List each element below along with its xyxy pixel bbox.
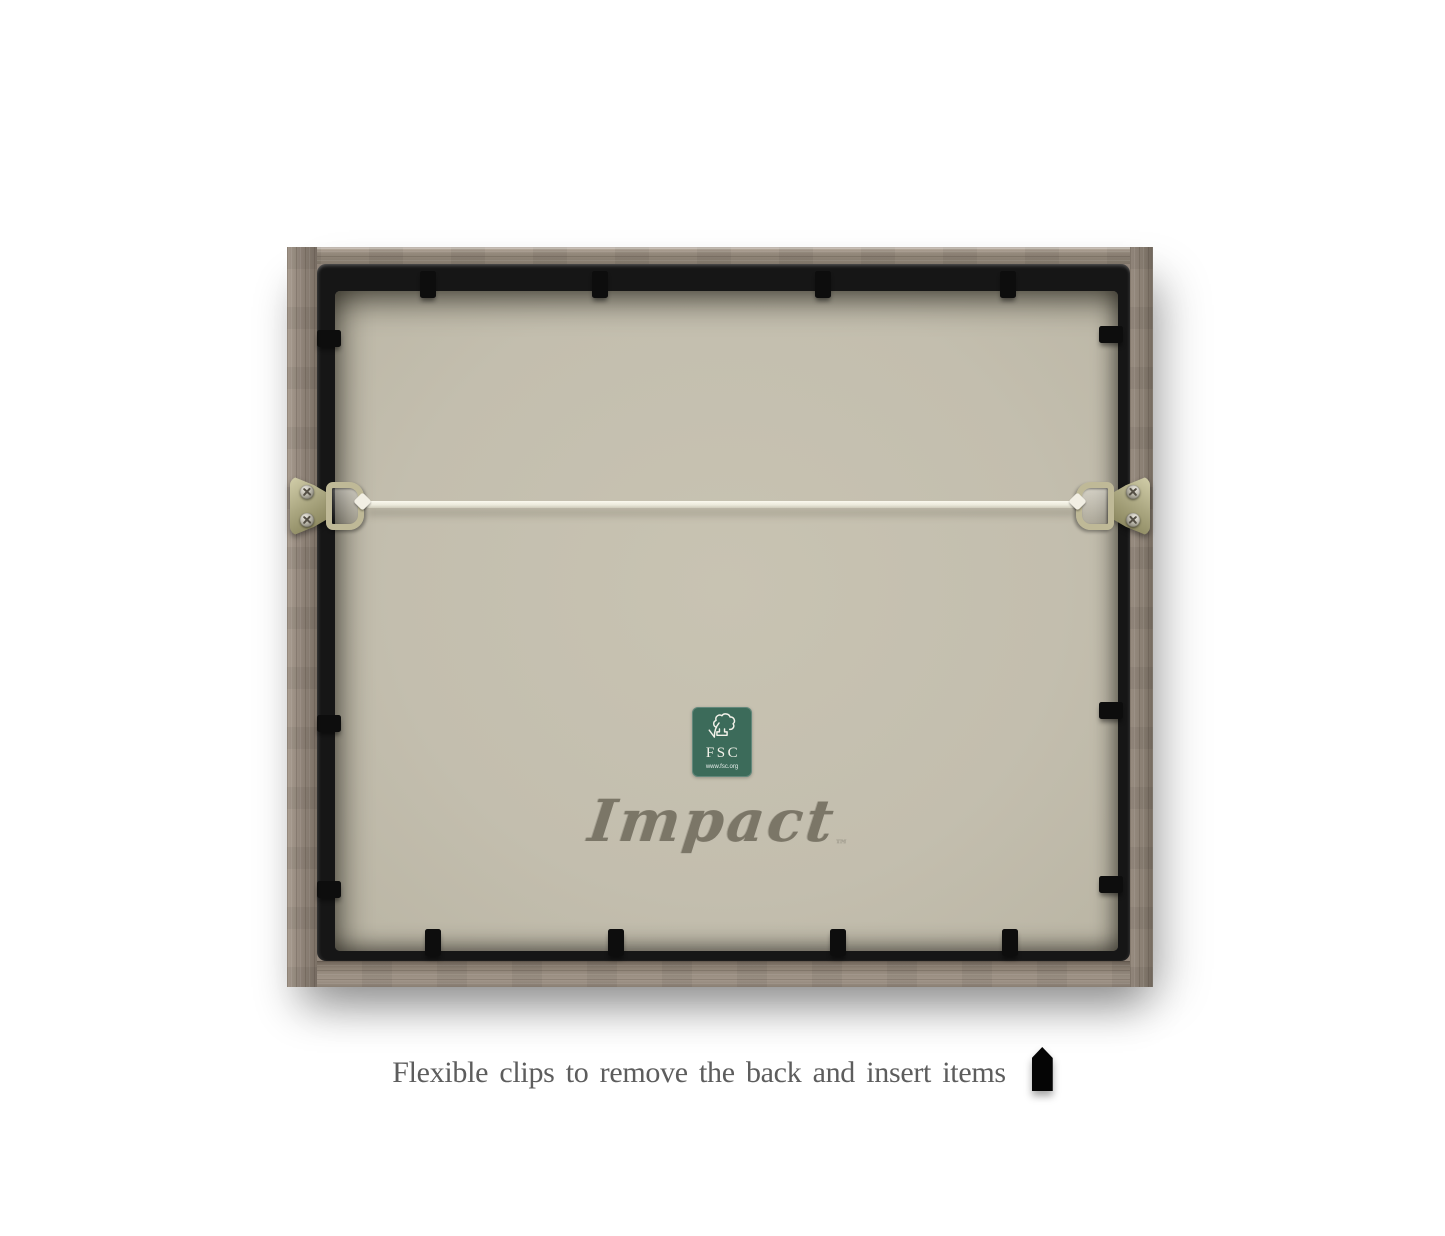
screw-icon [1126, 513, 1140, 527]
screw-icon [300, 513, 314, 527]
wood-frame-top [287, 247, 1153, 264]
wood-frame-left [287, 247, 317, 987]
screw-icon [300, 485, 314, 499]
flexible-clip-left-2 [317, 715, 341, 732]
flexible-clip-top-4 [1000, 271, 1016, 298]
d-ring-hanger-right [1066, 477, 1150, 537]
caption-text: Flexible clips to remove the back and in… [392, 1044, 1006, 1101]
flexible-clip-right-1 [1099, 326, 1123, 343]
fsc-acronym: FSC [704, 746, 740, 761]
flexible-clip-icon [1032, 1047, 1053, 1091]
flexible-clip-bottom-1 [425, 929, 441, 956]
product-image: FSC www.fsc.org Impact™ Flexible clips t… [0, 0, 1445, 1236]
flexible-clip-bottom-4 [1002, 929, 1018, 956]
fsc-url: www.fsc.org [706, 764, 738, 770]
hanging-wire [365, 501, 1079, 508]
flexible-clip-top-2 [592, 271, 608, 298]
flexible-clip-bottom-3 [830, 929, 846, 956]
flexible-clip-right-3 [1099, 876, 1123, 893]
d-ring-hanger-left [290, 477, 374, 537]
flexible-clip-bottom-2 [608, 929, 624, 956]
fsc-tree-checkmark-icon [705, 712, 739, 745]
picture-frame-back: FSC www.fsc.org Impact™ [287, 247, 1153, 987]
flexible-clip-left-3 [317, 881, 341, 898]
wood-frame-bottom [287, 961, 1153, 987]
fsc-label: FSC www.fsc.org [692, 707, 752, 777]
screw-icon [1126, 485, 1140, 499]
brand-logo: Impact™ [283, 792, 1156, 852]
flexible-clip-top-3 [815, 271, 831, 298]
wood-frame-right [1130, 247, 1153, 987]
brand-name: Impact [585, 787, 840, 855]
flexible-clip-right-2 [1099, 702, 1123, 719]
black-back-panel [317, 264, 1130, 961]
flexible-clip-left-1 [317, 330, 341, 347]
flexible-clip-top-1 [420, 271, 436, 298]
caption-row: Flexible clips to remove the back and in… [0, 1044, 1445, 1101]
trademark-mark: ™ [834, 838, 849, 853]
